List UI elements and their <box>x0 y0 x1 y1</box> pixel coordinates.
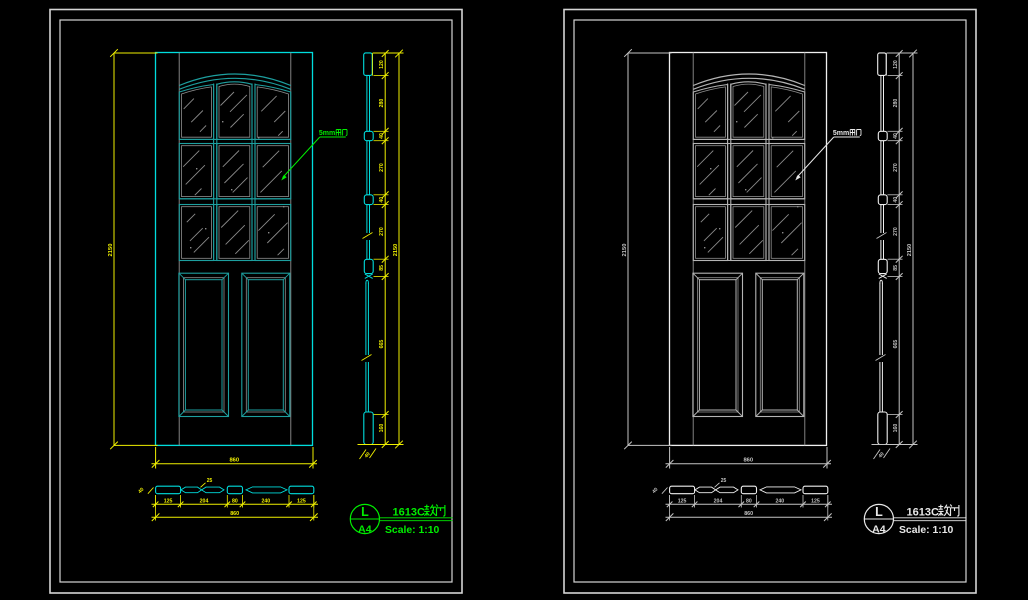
svg-text:125: 125 <box>811 498 820 504</box>
svg-text:665: 665 <box>379 340 385 349</box>
svg-text:204: 204 <box>714 498 723 504</box>
svg-text:160: 160 <box>379 424 385 433</box>
svg-text:5mm: 5mm <box>833 130 849 137</box>
svg-text:A4: A4 <box>872 524 886 536</box>
svg-text:Scale: 1:10: Scale: 1:10 <box>385 525 440 536</box>
svg-text:25: 25 <box>207 478 213 484</box>
svg-text:270: 270 <box>893 227 899 236</box>
svg-text:270: 270 <box>379 227 385 236</box>
svg-text:860: 860 <box>230 511 239 517</box>
svg-text:L: L <box>361 505 369 519</box>
svg-text:270: 270 <box>379 163 385 172</box>
svg-text:A4: A4 <box>358 524 372 536</box>
svg-text:40: 40 <box>379 197 385 203</box>
svg-text:125: 125 <box>164 498 173 504</box>
svg-text:280: 280 <box>893 99 899 108</box>
svg-text:40: 40 <box>379 133 385 139</box>
svg-text:120: 120 <box>379 60 385 69</box>
svg-text:85: 85 <box>379 265 385 271</box>
svg-text:Scale: 1:10: Scale: 1:10 <box>899 525 954 536</box>
svg-text:2150: 2150 <box>622 244 628 257</box>
svg-text:665: 665 <box>893 340 899 349</box>
svg-text:2150: 2150 <box>108 244 114 257</box>
svg-text:240: 240 <box>775 498 784 504</box>
svg-text:280: 280 <box>379 99 385 108</box>
svg-text:860: 860 <box>229 457 239 463</box>
svg-text:860: 860 <box>743 457 753 463</box>
svg-text:860: 860 <box>744 511 753 517</box>
svg-text:160: 160 <box>893 424 899 433</box>
svg-text:1613C: 1613C <box>393 506 425 518</box>
svg-text:270: 270 <box>893 163 899 172</box>
svg-text:1613C: 1613C <box>907 506 939 518</box>
svg-text:125: 125 <box>678 498 687 504</box>
svg-text:2150: 2150 <box>393 244 399 256</box>
svg-text:120: 120 <box>893 60 899 69</box>
svg-text:40: 40 <box>893 197 899 203</box>
svg-text:80: 80 <box>746 498 752 504</box>
svg-text:2150: 2150 <box>907 244 913 256</box>
svg-text:5mm: 5mm <box>319 130 335 137</box>
svg-text:85: 85 <box>893 265 899 271</box>
svg-text:240: 240 <box>261 498 270 504</box>
svg-text:80: 80 <box>232 498 238 504</box>
svg-text:25: 25 <box>721 478 727 484</box>
svg-text:L: L <box>875 505 883 519</box>
svg-text:125: 125 <box>297 498 306 504</box>
svg-text:204: 204 <box>200 498 209 504</box>
svg-text:40: 40 <box>893 133 899 139</box>
